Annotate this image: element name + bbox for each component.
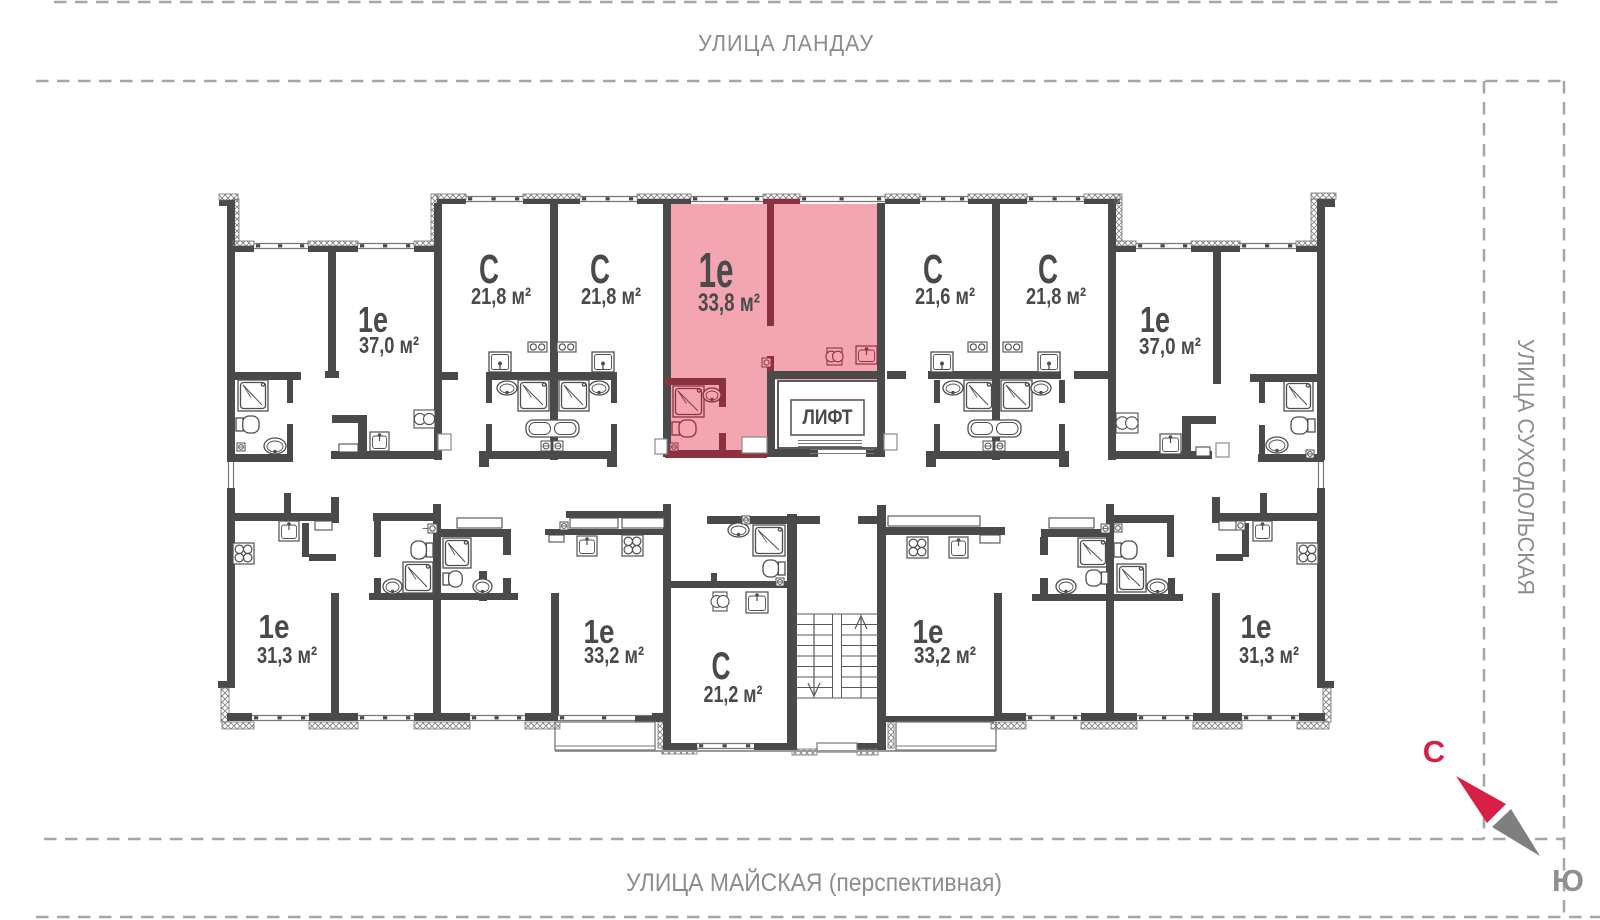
svg-text:37,0 м²: 37,0 м² [359,332,419,358]
svg-text:33,8 м²: 33,8 м² [698,289,760,317]
svg-text:Ю: Ю [1552,863,1584,898]
svg-text:ЛИФТ: ЛИФТ [803,406,853,429]
svg-text:С: С [1423,734,1445,769]
svg-text:33,2 м²: 33,2 м² [584,642,644,668]
svg-text:21,8 м²: 21,8 м² [471,283,531,309]
svg-text:21,6 м²: 21,6 м² [915,283,975,309]
svg-text:33,2 м²: 33,2 м² [914,642,976,668]
svg-text:УЛИЦА ЛАНДАУ: УЛИЦА ЛАНДАУ [698,30,874,56]
svg-text:21,8 м²: 21,8 м² [581,283,641,309]
svg-text:УЛИЦА СУХОДОЛЬСКАЯ: УЛИЦА СУХОДОЛЬСКАЯ [1513,339,1539,595]
svg-text:37,0 м²: 37,0 м² [1139,333,1201,359]
svg-text:31,3 м²: 31,3 м² [1239,642,1299,668]
svg-text:21,2 м²: 21,2 м² [704,681,763,707]
svg-text:1е: 1е [1241,608,1272,645]
svg-text:УЛИЦА МАЙСКАЯ (перспективная): УЛИЦА МАЙСКАЯ (перспективная) [626,867,1002,897]
svg-text:31,3 м²: 31,3 м² [257,642,317,668]
svg-text:1е: 1е [259,608,290,645]
svg-text:21,8 м²: 21,8 м² [1026,283,1086,309]
